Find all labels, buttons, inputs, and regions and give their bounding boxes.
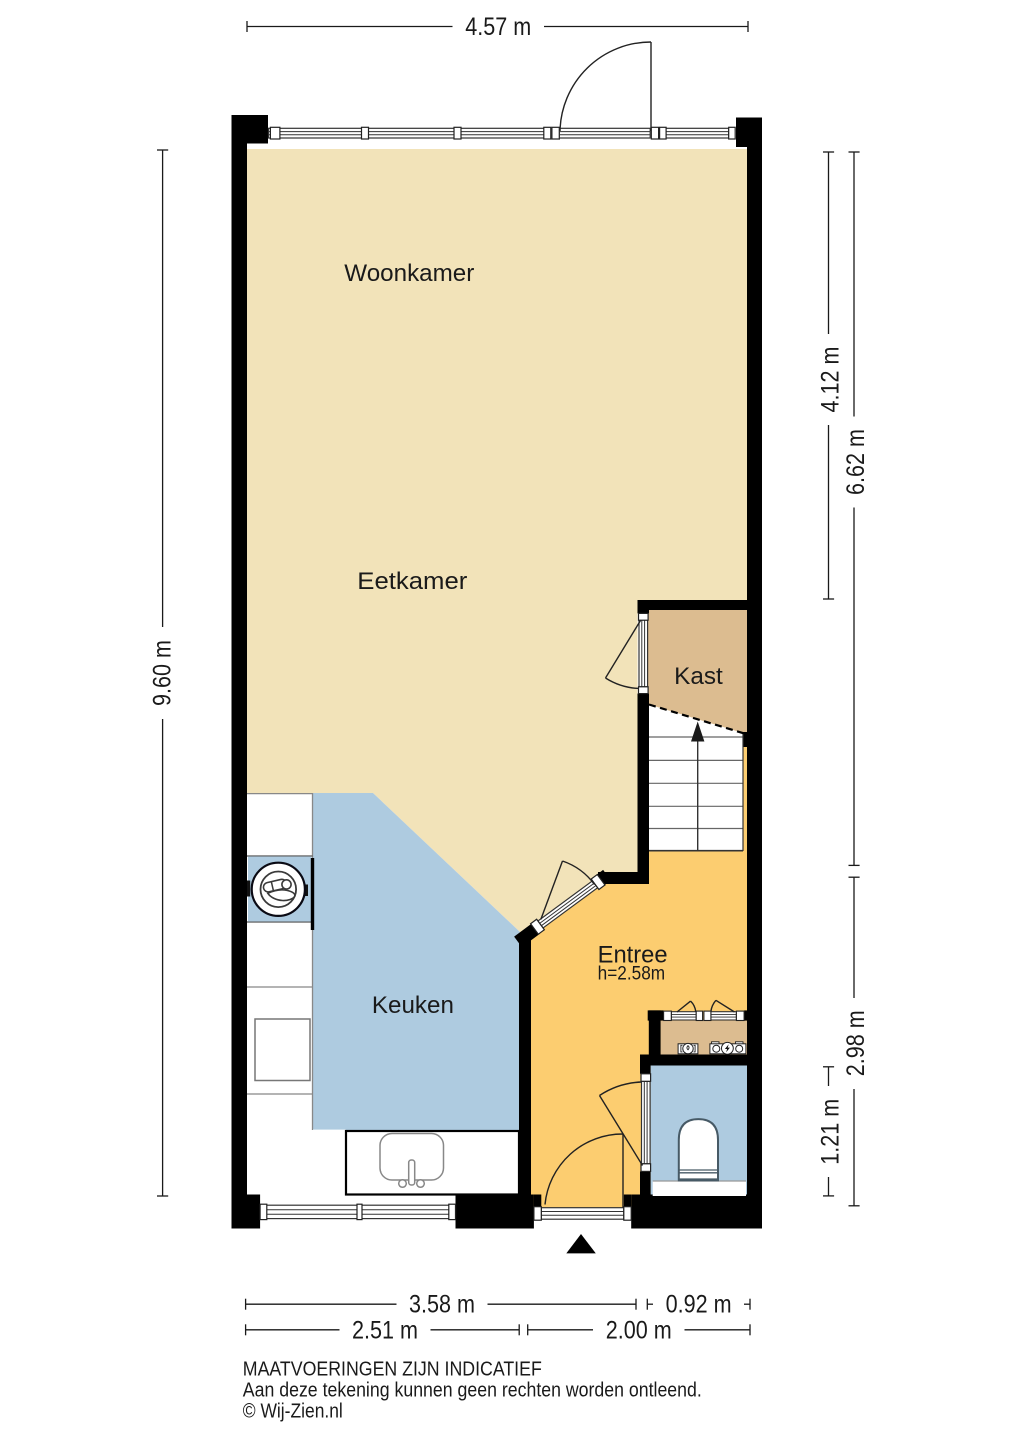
svg-text:Woonkamer: Woonkamer <box>344 260 474 287</box>
svg-text:2.98 m: 2.98 m <box>842 1010 870 1076</box>
svg-text:2.51 m: 2.51 m <box>352 1316 418 1344</box>
svg-text:Keuken: Keuken <box>372 992 454 1019</box>
svg-text:2.00 m: 2.00 m <box>606 1316 672 1344</box>
svg-text:Aan deze tekening kunnen geen: Aan deze tekening kunnen geen rechten wo… <box>243 1380 702 1402</box>
svg-text:3.58 m: 3.58 m <box>409 1291 475 1319</box>
svg-text:4.57 m: 4.57 m <box>465 13 531 41</box>
svg-text:MAATVOERINGEN ZIJN INDICATIEF: MAATVOERINGEN ZIJN INDICATIEF <box>243 1359 542 1381</box>
svg-text:6.62 m: 6.62 m <box>842 429 870 495</box>
svg-text:h=2.58m: h=2.58m <box>598 963 666 984</box>
svg-text:Eetkamer: Eetkamer <box>357 568 467 595</box>
svg-text:9.60 m: 9.60 m <box>149 640 177 706</box>
svg-text:1.21 m: 1.21 m <box>817 1099 845 1165</box>
svg-text:© Wij-Zien.nl: © Wij-Zien.nl <box>243 1401 343 1423</box>
svg-text:Kast: Kast <box>674 663 723 690</box>
svg-text:0.92 m: 0.92 m <box>666 1291 732 1319</box>
svg-text:4.12 m: 4.12 m <box>817 347 845 413</box>
